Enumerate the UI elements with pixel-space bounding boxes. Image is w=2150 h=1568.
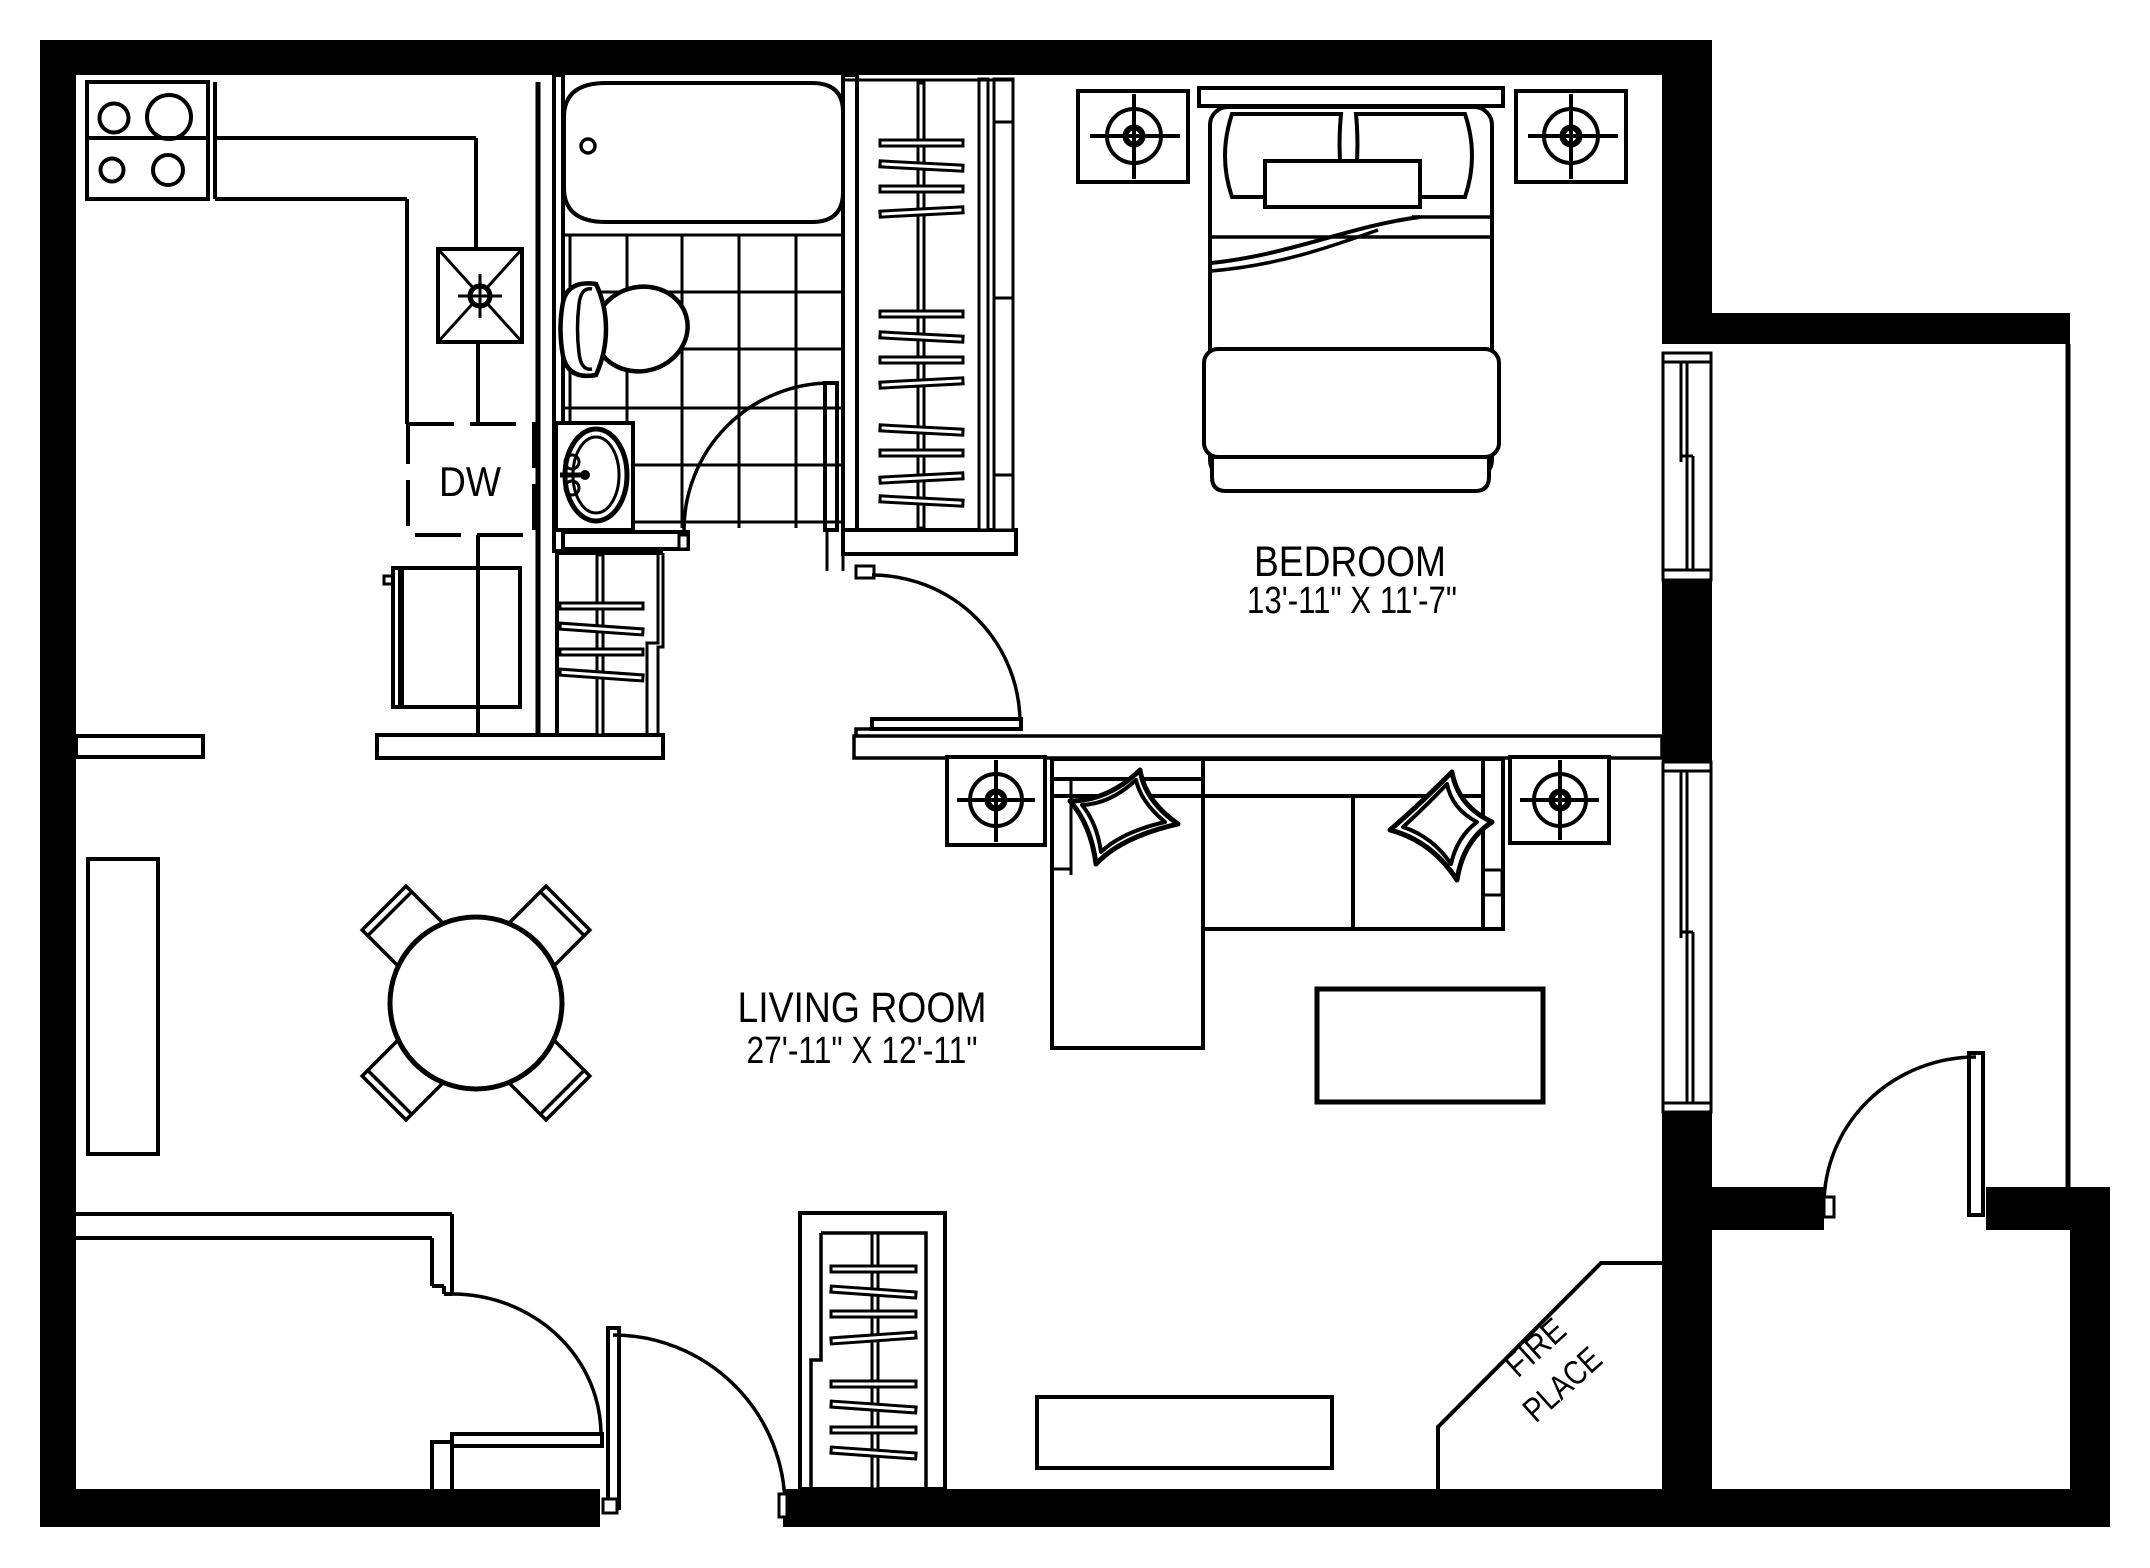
- svg-text:BEDROOM: BEDROOM: [1254, 538, 1446, 586]
- svg-text:DW: DW: [439, 458, 501, 505]
- svg-text:27'-11" X 12'-11": 27'-11" X 12'-11": [747, 1030, 978, 1072]
- svg-text:13'-11" X 11'-7": 13'-11" X 11'-7": [1247, 580, 1457, 622]
- svg-text:LIVING ROOM: LIVING ROOM: [738, 984, 987, 1032]
